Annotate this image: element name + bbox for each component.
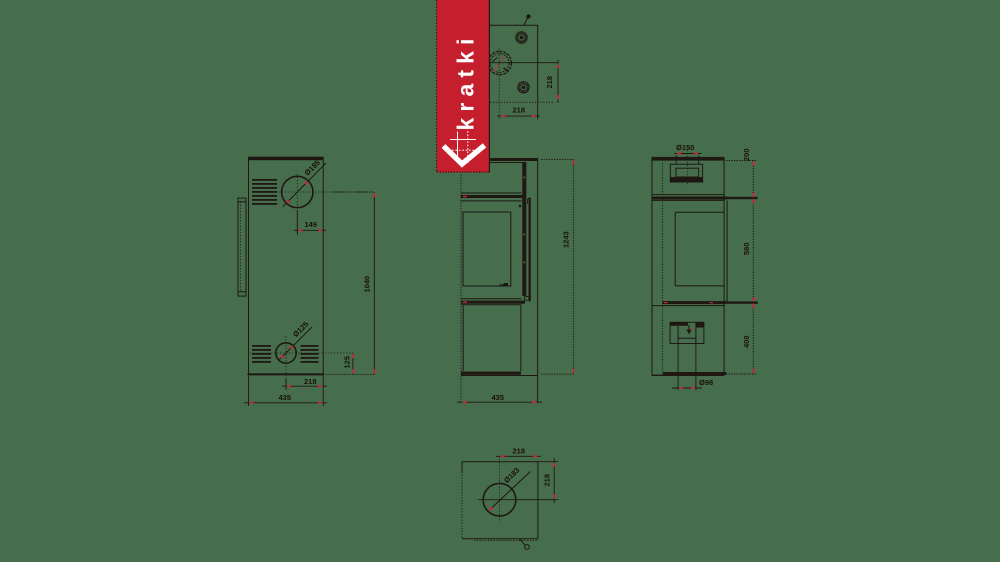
- svg-text:149: 149: [305, 220, 318, 229]
- svg-text:580: 580: [742, 242, 751, 255]
- svg-text:435: 435: [492, 393, 505, 402]
- svg-text:Ø150: Ø150: [676, 143, 694, 152]
- svg-text:218: 218: [543, 474, 552, 487]
- svg-text:1040: 1040: [363, 276, 372, 293]
- svg-text:125: 125: [343, 356, 352, 369]
- svg-text:218: 218: [545, 76, 554, 89]
- svg-text:218: 218: [513, 447, 526, 456]
- svg-text:Ø125: Ø125: [291, 320, 310, 339]
- svg-text:Ø98: Ø98: [699, 378, 713, 387]
- svg-text:435: 435: [279, 393, 292, 402]
- svg-text:218: 218: [513, 106, 526, 115]
- svg-text:200: 200: [742, 148, 751, 161]
- svg-text:kratki: kratki: [453, 33, 479, 131]
- svg-text:1243: 1243: [562, 231, 571, 248]
- svg-text:400: 400: [742, 335, 751, 348]
- svg-text:Ø185: Ø185: [303, 158, 322, 177]
- svg-text:218: 218: [304, 377, 317, 386]
